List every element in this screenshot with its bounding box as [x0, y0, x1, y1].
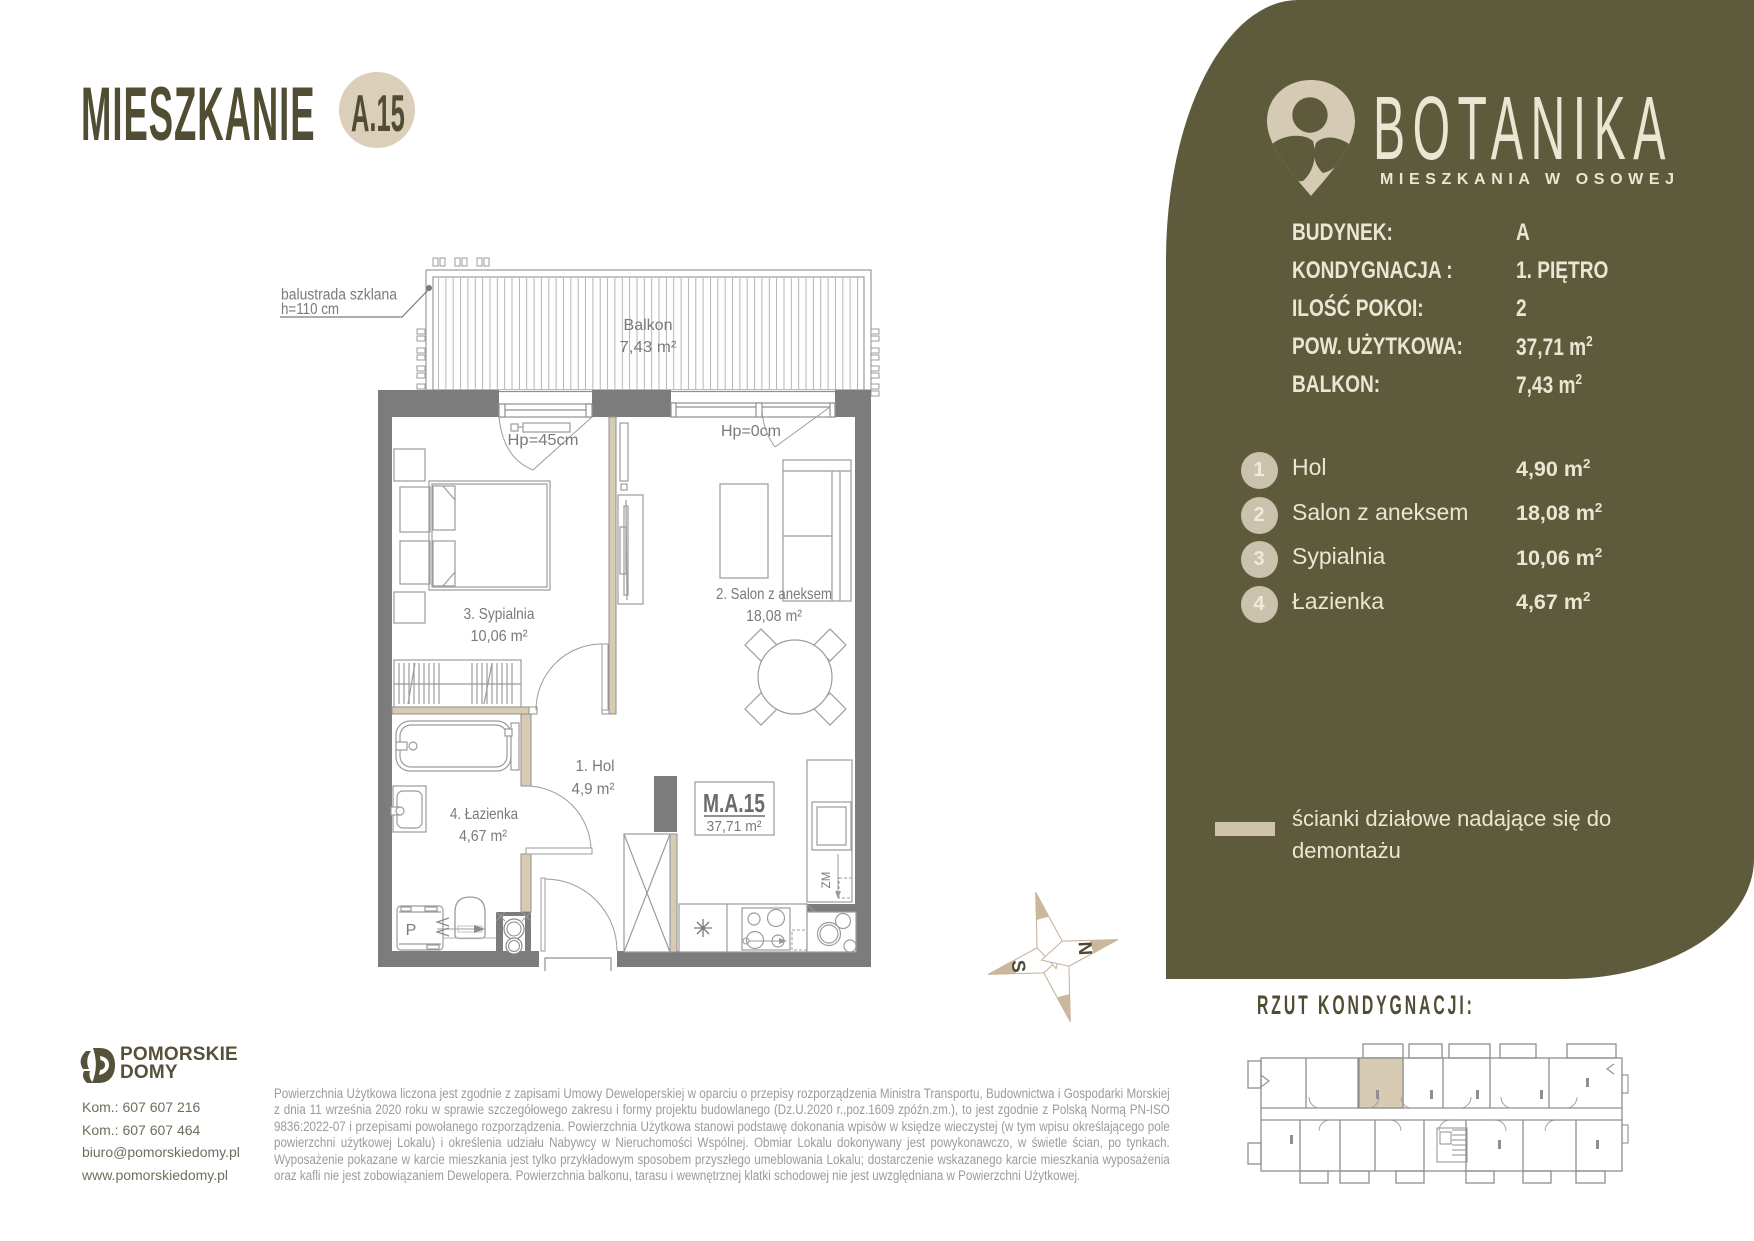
svg-text:ZM: ZM: [821, 872, 833, 889]
svg-text:7,43 m²: 7,43 m²: [620, 339, 678, 356]
svg-text:P: P: [406, 922, 417, 939]
svg-text:4,67 m²: 4,67 m²: [459, 828, 508, 845]
svg-text:1. Hol: 1. Hol: [576, 758, 615, 775]
svg-text:18,08 m²: 18,08 m²: [746, 608, 803, 625]
svg-text:h=110 cm: h=110 cm: [281, 301, 339, 318]
svg-text:4,9 m²: 4,9 m²: [572, 781, 616, 798]
svg-text:S: S: [1007, 959, 1029, 973]
svg-text:Balkon: Balkon: [624, 317, 673, 334]
svg-text:10,06 m²: 10,06 m²: [471, 628, 529, 645]
svg-text:Hp=0cm: Hp=0cm: [721, 423, 781, 440]
svg-text:M.A.15: M.A.15: [703, 788, 765, 818]
svg-text:2. Salon z aneksem: 2. Salon z aneksem: [716, 586, 832, 603]
svg-text:Hp=45cm: Hp=45cm: [508, 432, 579, 449]
svg-text:4. Łazienka: 4. Łazienka: [450, 806, 518, 823]
svg-text:37,71 m²: 37,71 m²: [707, 818, 762, 835]
svg-text:3. Sypialnia: 3. Sypialnia: [464, 606, 535, 623]
svg-text:N: N: [1074, 941, 1096, 956]
